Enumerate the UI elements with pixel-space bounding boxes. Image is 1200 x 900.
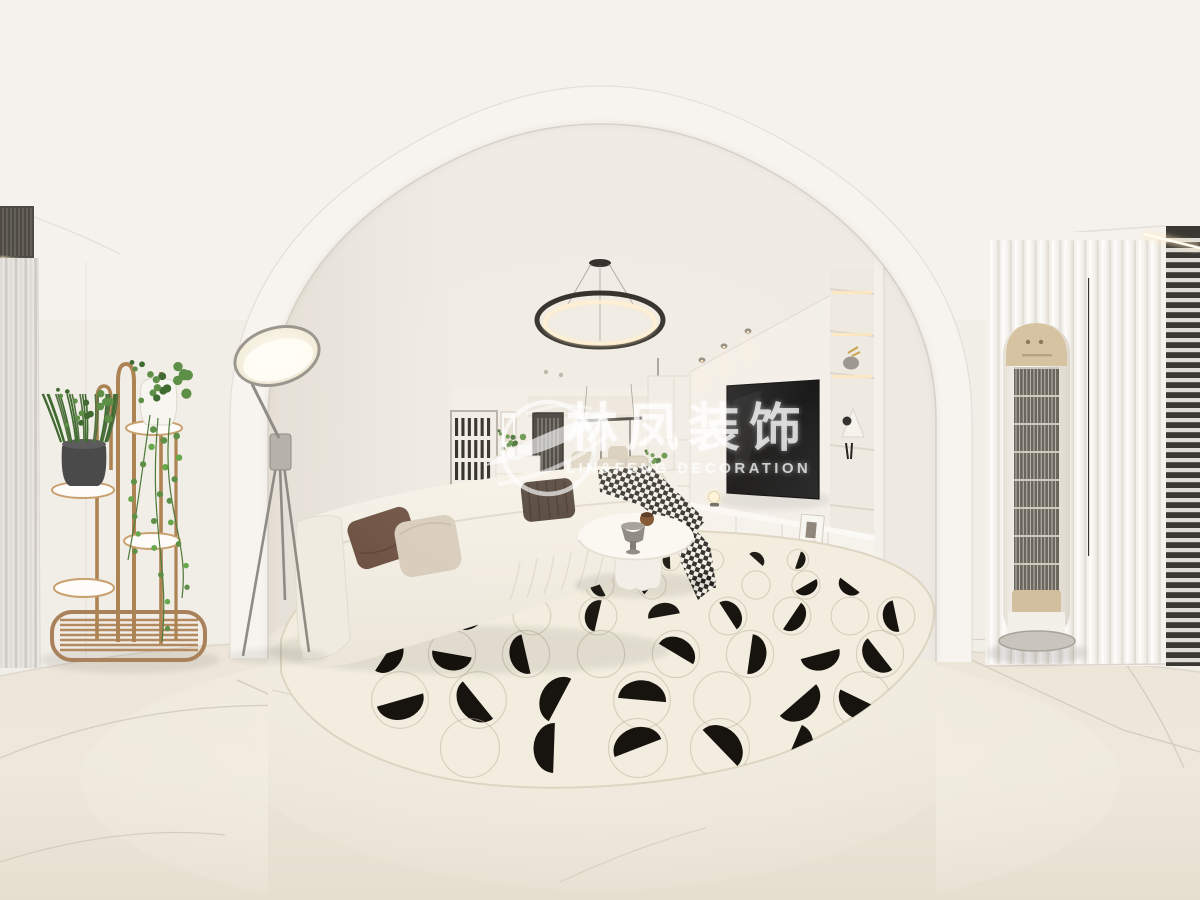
right-foreground [985, 226, 1200, 666]
panorama-photo-living-room: 林凤装饰 LIN&FENG DECORATION [0, 0, 1200, 900]
ac-indicator [1039, 340, 1043, 344]
lamp-joint [270, 434, 291, 470]
rendered-scene [0, 0, 1200, 900]
ac-label-line [1022, 354, 1052, 356]
ac-base [999, 631, 1075, 651]
edge-blind-slats [1166, 238, 1200, 662]
curtain-left [0, 258, 38, 668]
ac-indicator [1026, 340, 1030, 344]
interior-light-wash [270, 220, 930, 640]
right-dark-window [1166, 226, 1200, 666]
ac-bottom-band [1012, 590, 1061, 614]
stand-shelf [54, 579, 114, 597]
curtain-box-left [0, 206, 36, 263]
